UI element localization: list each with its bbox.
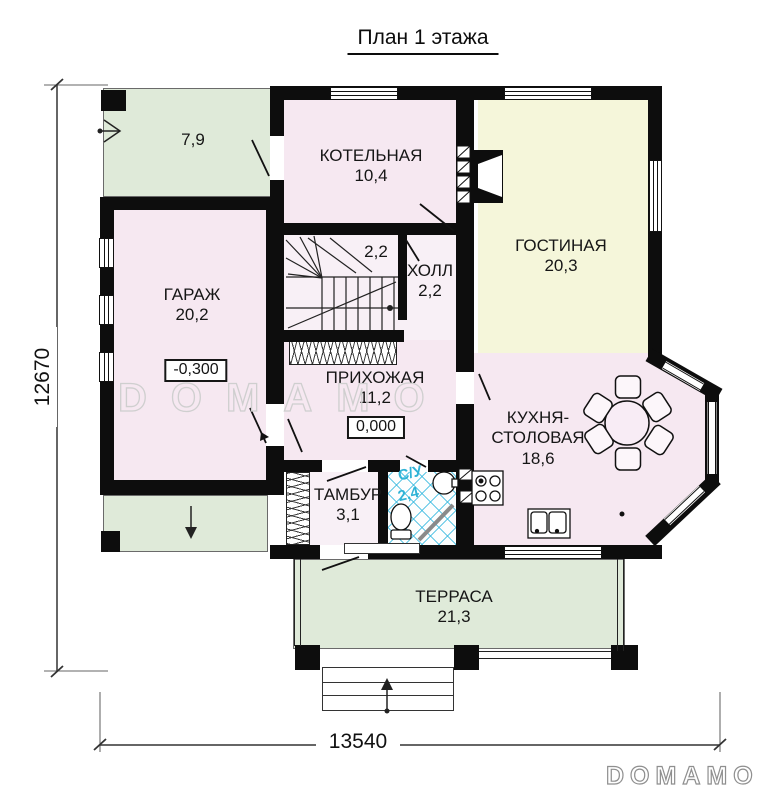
terrace-label: ТЕРРАСА 21,3 (415, 587, 492, 628)
door-leaf-boiler-hall (420, 204, 454, 231)
living-name: ГОСТИНАЯ (515, 236, 607, 256)
door-leaf-vestibule (327, 467, 366, 481)
door-leaf-porch-boiler (252, 140, 269, 176)
garage-elevation-mark: -0,300 (164, 359, 227, 382)
entry-label: ПРИХОЖАЯ 11,2 (326, 368, 425, 409)
hall-name: ХОЛЛ (407, 261, 453, 281)
porch-area: 7,9 (181, 130, 205, 150)
floor-dot (620, 512, 625, 517)
vestibule-name: ТАМБУР (314, 485, 382, 505)
living-area: 20,3 (515, 256, 607, 276)
kitchen-name-line1: КУХНЯ- (491, 408, 584, 428)
entry-elevation-mark: 0,000 (347, 416, 405, 439)
entry-name: ПРИХОЖАЯ (326, 368, 425, 388)
kitchen-label: КУХНЯ- СТОЛОВАЯ 18,6 (491, 408, 584, 469)
hall-area: 2,2 (407, 281, 453, 301)
vestibule-label: ТАМБУР 3,1 (314, 485, 382, 526)
floor-plan: План 1 этажа (0, 0, 778, 800)
chimney-vents (457, 146, 470, 203)
gate-icon (98, 120, 121, 142)
dining-table (582, 376, 675, 470)
door-leaf-entry (288, 419, 302, 452)
stair-label: 2,2 (364, 242, 388, 262)
stove (472, 471, 503, 505)
living-label: ГОСТИНАЯ 20,3 (515, 236, 607, 277)
boiler-label: КОТЕЛЬНАЯ 10,4 (320, 146, 423, 187)
terrace-name: ТЕРРАСА (415, 587, 492, 607)
hall-label: ХОЛЛ 2,2 (407, 261, 453, 302)
door-leaf-entrance (322, 557, 359, 570)
toilet (391, 504, 411, 539)
fireplace (470, 150, 503, 203)
entry-area: 11,2 (326, 388, 425, 408)
kitchen-sink (528, 509, 570, 538)
door-leaf-hall (406, 240, 419, 261)
dimension-width: 13540 (316, 730, 400, 754)
chair-bottom (616, 448, 641, 470)
door-leaf-entry-kitchen (479, 374, 490, 400)
shower-corner (419, 505, 453, 540)
page-title: План 1 этажа (347, 26, 498, 55)
dimension-height: 12670 (31, 327, 57, 427)
garage-label: ГАРАЖ 20,2 (164, 285, 221, 326)
vestibule-area: 3,1 (314, 505, 382, 525)
chair-top (616, 376, 641, 398)
steps-up-arrow (381, 678, 393, 714)
boiler-area: 10,4 (320, 166, 423, 186)
porch-label: 7,9 (181, 130, 205, 150)
boiler-name: КОТЕЛЬНАЯ (320, 146, 423, 166)
terrace-area: 21,3 (415, 607, 492, 627)
garage-area: 20,2 (164, 305, 221, 325)
kitchen-name-line2: СТОЛОВАЯ (491, 428, 584, 448)
wash-basin (433, 472, 458, 494)
garage-name: ГАРАЖ (164, 285, 221, 305)
driveway-arrow (185, 506, 197, 539)
kitchen-area: 18,6 (491, 449, 584, 469)
stair-area: 2,2 (364, 242, 388, 262)
